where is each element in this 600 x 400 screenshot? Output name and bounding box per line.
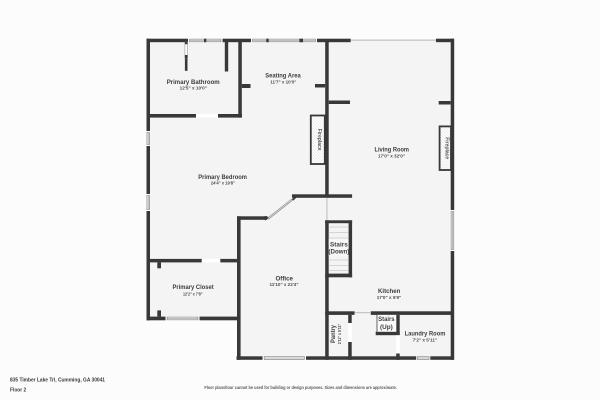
svg-text:11'7" x 10'0": 11'7" x 10'0" — [270, 80, 296, 86]
svg-text:(Up): (Up) — [380, 325, 393, 331]
svg-text:2'11" x 5'11": 2'11" x 5'11" — [337, 324, 342, 345]
svg-text:12'5" x 10'0": 12'5" x 10'0" — [180, 85, 207, 91]
svg-text:Stairs: Stairs — [330, 243, 348, 249]
svg-text:12'2" x 7'8": 12'2" x 7'8" — [183, 292, 203, 298]
svg-text:24'4" x 19'8": 24'4" x 19'8" — [211, 181, 235, 187]
svg-text:11'10" x 22'4": 11'10" x 22'4" — [270, 282, 299, 288]
svg-text:Primary Closet: Primary Closet — [172, 284, 214, 291]
svg-text:Floor 2: Floor 2 — [10, 388, 26, 394]
svg-text:Floor plans/tour cannot be use: Floor plans/tour cannot be used for buil… — [204, 385, 397, 390]
svg-text:Laundry Room: Laundry Room — [405, 330, 446, 337]
svg-text:Fireplace: Fireplace — [443, 137, 449, 159]
svg-text:Kitchen: Kitchen — [378, 288, 401, 295]
svg-text:Primary Bedroom: Primary Bedroom — [198, 174, 247, 181]
svg-text:Stairs: Stairs — [378, 317, 395, 323]
svg-text:Seating Area: Seating Area — [265, 73, 301, 80]
svg-text:Fireplace: Fireplace — [316, 129, 322, 151]
svg-text:17'0" x 32'0": 17'0" x 32'0" — [378, 154, 405, 160]
svg-text:Living Room: Living Room — [375, 147, 410, 154]
svg-text:17'0" x 5'9": 17'0" x 5'9" — [377, 295, 402, 301]
svg-text:835 Timber Lake Trl, Cumming,: 835 Timber Lake Trl, Cumming, GA 30041 — [10, 377, 105, 383]
svg-text:Office: Office — [276, 276, 294, 283]
svg-text:7'2" x 5'11": 7'2" x 5'11" — [413, 337, 438, 343]
svg-text:Primary Bathroom: Primary Bathroom — [167, 79, 220, 86]
svg-text:(Down): (Down) — [328, 250, 349, 256]
